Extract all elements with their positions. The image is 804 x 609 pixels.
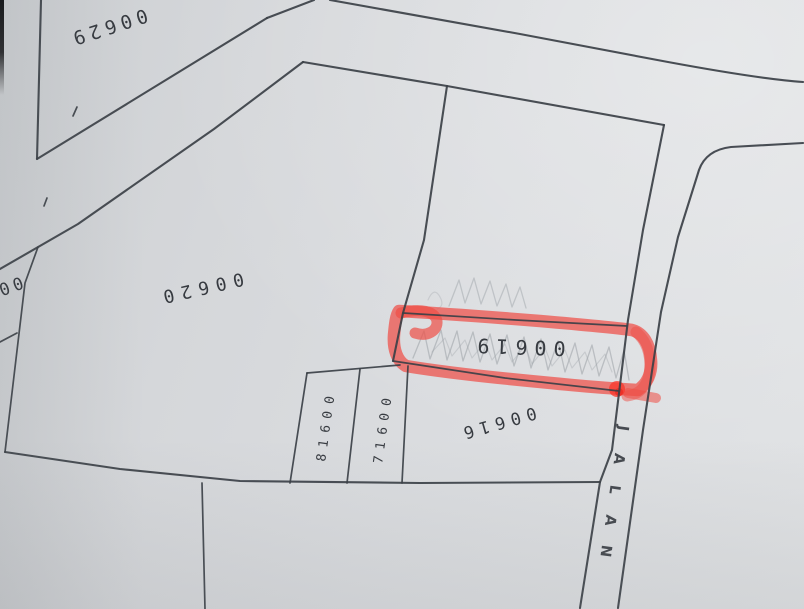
survey-map-photo: 00629 00620 00619 00616 00 00618 00617 J… <box>0 0 804 609</box>
strip-west-edge <box>290 373 307 483</box>
map-drawing <box>0 0 804 609</box>
tick-mark-2 <box>44 198 47 206</box>
top-road-north-edge <box>330 0 803 82</box>
left-vertical-boundary <box>37 0 41 159</box>
strip-divider-1 <box>347 369 360 483</box>
strip-divider-2 <box>402 366 408 483</box>
bottom-boundary <box>5 452 600 483</box>
bottom-vertical-boundary <box>202 483 205 609</box>
plot-label-00619-highlighted: 00619 <box>470 333 566 360</box>
strips-top-edge <box>307 365 400 373</box>
boundary-lines <box>0 0 803 609</box>
tick-mark-1 <box>73 107 77 116</box>
gore-boundary <box>267 0 314 18</box>
left-sliver-divider <box>0 333 17 342</box>
road-lower-edge <box>0 62 303 269</box>
top-road-south-edge <box>303 62 664 125</box>
